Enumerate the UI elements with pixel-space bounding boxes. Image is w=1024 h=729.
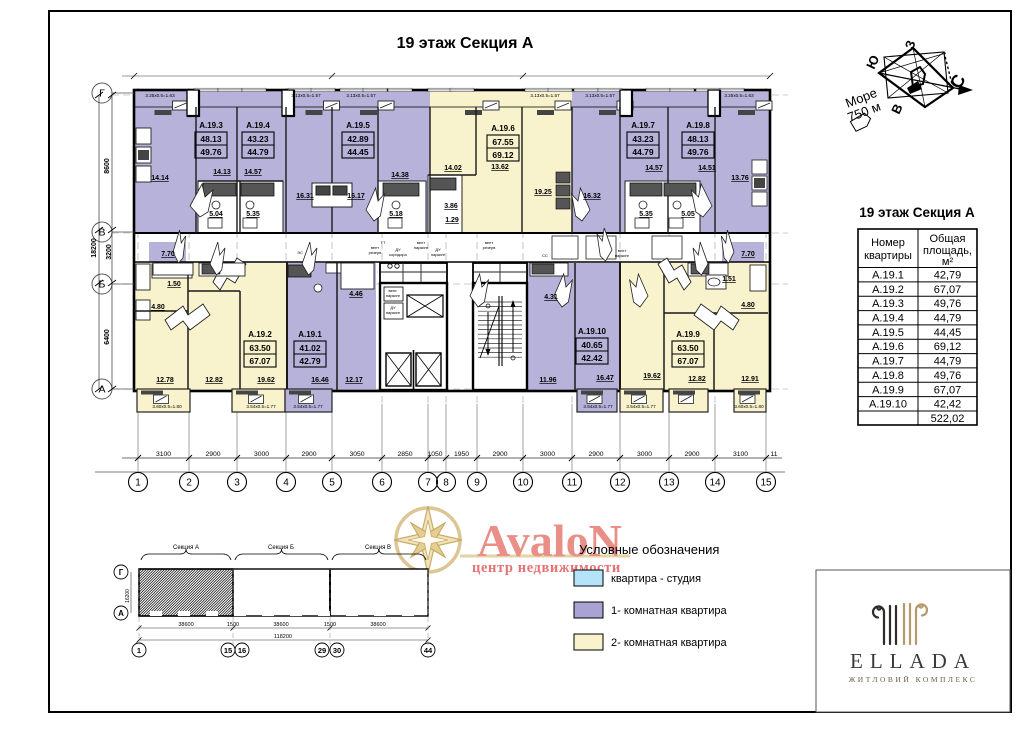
svg-text:3100: 3100 xyxy=(733,451,748,458)
svg-text:18200: 18200 xyxy=(91,238,98,258)
svg-text:А.19.9: А.19.9 xyxy=(676,330,700,339)
svg-text:44,79: 44,79 xyxy=(934,313,962,325)
svg-text:А.19.10: А.19.10 xyxy=(578,327,607,336)
svg-text:AvaloN: AvaloN xyxy=(477,515,622,566)
svg-text:резерв: резерв xyxy=(369,250,382,255)
svg-text:12.91: 12.91 xyxy=(741,376,759,383)
svg-text:Номер: Номер xyxy=(871,237,905,249)
svg-text:12.82: 12.82 xyxy=(688,376,706,383)
svg-text:3.13х0.5=1.57: 3.13х0.5=1.57 xyxy=(291,93,321,98)
svg-text:7.70: 7.70 xyxy=(161,251,175,258)
svg-text:3000: 3000 xyxy=(540,451,555,458)
svg-text:резерв: резерв xyxy=(483,245,496,250)
svg-text:15: 15 xyxy=(760,478,772,489)
svg-text:8: 8 xyxy=(443,478,449,489)
svg-text:67.07: 67.07 xyxy=(677,356,699,366)
svg-text:паркинг: паркинг xyxy=(414,245,429,250)
svg-text:12.78: 12.78 xyxy=(156,377,174,384)
svg-text:16.32: 16.32 xyxy=(583,193,601,200)
svg-text:А.19.6: А.19.6 xyxy=(872,341,904,353)
svg-text:44.79: 44.79 xyxy=(632,147,654,157)
svg-text:13.76: 13.76 xyxy=(731,175,749,182)
svg-text:38600: 38600 xyxy=(273,622,288,628)
svg-text:1.29: 1.29 xyxy=(445,217,459,224)
svg-text:А.19.8: А.19.8 xyxy=(872,370,904,382)
svg-text:4.80: 4.80 xyxy=(741,302,755,309)
svg-text:3.54х0.5=1.77: 3.54х0.5=1.77 xyxy=(583,404,613,409)
svg-text:44,45: 44,45 xyxy=(934,327,962,339)
svg-text:ТТ: ТТ xyxy=(381,240,386,245)
svg-text:48.13: 48.13 xyxy=(200,134,222,144)
svg-text:42.79: 42.79 xyxy=(299,356,321,366)
svg-text:118200: 118200 xyxy=(274,634,292,640)
svg-text:69.12: 69.12 xyxy=(492,150,514,160)
svg-text:А.19.7: А.19.7 xyxy=(631,121,655,130)
svg-text:49,76: 49,76 xyxy=(934,298,962,310)
svg-text:паркинг: паркинг xyxy=(615,253,630,258)
svg-text:16.46: 16.46 xyxy=(311,377,329,384)
svg-text:10: 10 xyxy=(517,478,529,489)
svg-text:16: 16 xyxy=(238,646,246,655)
svg-text:5.18: 5.18 xyxy=(389,211,403,218)
svg-text:14.57: 14.57 xyxy=(645,165,663,172)
svg-text:19.62: 19.62 xyxy=(643,373,661,380)
svg-text:паркинг: паркинг xyxy=(431,252,446,257)
svg-text:16.47: 16.47 xyxy=(596,375,614,382)
svg-text:коридора: коридора xyxy=(389,252,407,257)
svg-text:49.76: 49.76 xyxy=(687,147,709,157)
svg-text:А.19.5: А.19.5 xyxy=(872,327,904,339)
svg-text:522,02: 522,02 xyxy=(931,413,965,425)
svg-text:67.55: 67.55 xyxy=(492,137,514,147)
svg-text:2900: 2900 xyxy=(492,451,507,458)
svg-text:4.46: 4.46 xyxy=(349,291,363,298)
svg-text:2850: 2850 xyxy=(397,451,412,458)
svg-text:3.54х0.5=1.77: 3.54х0.5=1.77 xyxy=(626,404,656,409)
svg-text:5.35: 5.35 xyxy=(246,211,260,218)
svg-text:5.04: 5.04 xyxy=(209,211,223,218)
svg-text:67,07: 67,07 xyxy=(934,284,962,296)
svg-text:42.89: 42.89 xyxy=(347,134,369,144)
svg-text:3050: 3050 xyxy=(349,451,364,458)
svg-text:4.31: 4.31 xyxy=(544,294,558,301)
svg-text:3.54х0.5=1.77: 3.54х0.5=1.77 xyxy=(293,404,323,409)
svg-text:А.19.2: А.19.2 xyxy=(248,330,272,339)
svg-text:3.25х0.5=1.63: 3.25х0.5=1.63 xyxy=(724,93,754,98)
svg-text:А.19.1: А.19.1 xyxy=(872,270,904,282)
svg-text:14.02: 14.02 xyxy=(444,165,462,172)
svg-text:14.14: 14.14 xyxy=(151,175,169,182)
svg-text:3.25х0.5=1.63: 3.25х0.5=1.63 xyxy=(145,93,175,98)
svg-text:А.19.8: А.19.8 xyxy=(686,121,710,130)
svg-text:11: 11 xyxy=(770,451,777,458)
svg-text:1- комнатная квартира: 1- комнатная квартира xyxy=(611,605,727,617)
svg-text:ЭС: ЭС xyxy=(297,250,303,255)
svg-text:44: 44 xyxy=(424,646,433,655)
svg-text:19.62: 19.62 xyxy=(257,377,275,384)
svg-text:А.19.4: А.19.4 xyxy=(872,313,904,325)
svg-text:СС: СС xyxy=(542,253,548,258)
svg-text:А.19.3: А.19.3 xyxy=(872,298,904,310)
svg-text:67.07: 67.07 xyxy=(249,356,271,366)
svg-text:5: 5 xyxy=(329,478,335,489)
svg-text:16.31: 16.31 xyxy=(296,193,314,200)
svg-text:12.82: 12.82 xyxy=(205,377,223,384)
svg-text:19.25: 19.25 xyxy=(534,189,552,196)
svg-text:паркинг: паркинг xyxy=(386,293,401,298)
svg-text:49,76: 49,76 xyxy=(934,370,962,382)
svg-text:4.80: 4.80 xyxy=(151,304,165,311)
svg-text:63.50: 63.50 xyxy=(677,343,699,353)
svg-text:3000: 3000 xyxy=(254,451,269,458)
svg-text:16.17: 16.17 xyxy=(347,193,365,200)
svg-text:14.57: 14.57 xyxy=(244,169,262,176)
svg-text:А.19.6: А.19.6 xyxy=(491,124,515,133)
svg-text:44,79: 44,79 xyxy=(934,356,962,368)
svg-text:квартира - студия: квартира - студия xyxy=(611,573,701,585)
svg-text:42,42: 42,42 xyxy=(934,399,962,411)
svg-text:14.51: 14.51 xyxy=(698,165,716,172)
svg-text:6400: 6400 xyxy=(104,329,111,345)
svg-text:38600: 38600 xyxy=(370,622,385,628)
svg-text:15: 15 xyxy=(224,646,232,655)
svg-text:А: А xyxy=(98,384,105,396)
svg-text:6: 6 xyxy=(379,478,385,489)
svg-text:14.13: 14.13 xyxy=(213,169,231,176)
svg-text:1: 1 xyxy=(137,646,141,655)
svg-text:48.13: 48.13 xyxy=(687,134,709,144)
svg-text:паркинг: паркинг xyxy=(386,310,401,315)
svg-text:1050: 1050 xyxy=(427,451,442,458)
svg-text:43.23: 43.23 xyxy=(247,134,269,144)
svg-text:Условные обозначения: Условные обозначения xyxy=(579,542,719,557)
svg-text:2900: 2900 xyxy=(301,451,316,458)
svg-text:А.19.10: А.19.10 xyxy=(869,399,907,411)
svg-text:3: 3 xyxy=(234,478,240,489)
svg-text:42.42: 42.42 xyxy=(581,353,603,363)
svg-text:7: 7 xyxy=(425,478,431,489)
svg-text:12.17: 12.17 xyxy=(345,377,363,384)
svg-text:5.05: 5.05 xyxy=(681,211,695,218)
svg-text:14.38: 14.38 xyxy=(391,172,409,179)
svg-text:Секция В: Секция В xyxy=(365,545,391,551)
svg-text:3000: 3000 xyxy=(637,451,652,458)
svg-text:А.19.5: А.19.5 xyxy=(346,121,370,130)
svg-text:2: 2 xyxy=(186,478,192,489)
svg-text:3.13х0.5=1.57: 3.13х0.5=1.57 xyxy=(346,93,376,98)
svg-text:43.23: 43.23 xyxy=(632,134,654,144)
svg-text:4: 4 xyxy=(283,478,289,489)
svg-text:16200: 16200 xyxy=(125,589,131,603)
svg-text:3.60х0.5=1.80: 3.60х0.5=1.80 xyxy=(152,404,182,409)
svg-text:13: 13 xyxy=(663,478,675,489)
svg-text:30: 30 xyxy=(333,646,341,655)
svg-text:38600: 38600 xyxy=(178,622,193,628)
svg-text:м²: м² xyxy=(942,256,954,268)
svg-text:41.02: 41.02 xyxy=(299,343,321,353)
svg-text:69,12: 69,12 xyxy=(934,341,962,353)
svg-text:ЖИТЛОВИЙ КОМПЛЕКС: ЖИТЛОВИЙ КОМПЛЕКС xyxy=(849,675,978,684)
svg-text:1: 1 xyxy=(135,478,141,489)
svg-text:Г: Г xyxy=(99,88,105,100)
svg-text:3.54х0.5=1.77: 3.54х0.5=1.77 xyxy=(246,404,276,409)
svg-text:19 этаж Секция А: 19 этаж Секция А xyxy=(859,205,975,220)
svg-text:2900: 2900 xyxy=(684,451,699,458)
svg-text:3.13х0.5=1.57: 3.13х0.5=1.57 xyxy=(585,93,615,98)
svg-text:3.60х0.5=1.80: 3.60х0.5=1.80 xyxy=(734,404,764,409)
svg-text:1950: 1950 xyxy=(454,451,469,458)
svg-text:1.51: 1.51 xyxy=(722,276,736,283)
svg-text:ELLADA: ELLADA xyxy=(850,649,976,673)
svg-text:3.86: 3.86 xyxy=(444,203,458,210)
svg-text:19 этаж Секция А: 19 этаж Секция А xyxy=(397,35,534,52)
svg-text:42,79: 42,79 xyxy=(934,270,962,282)
svg-text:А.19.2: А.19.2 xyxy=(872,284,904,296)
svg-text:2- комнатная квартира: 2- комнатная квартира xyxy=(611,637,727,649)
svg-text:40.65: 40.65 xyxy=(581,340,603,350)
svg-text:3100: 3100 xyxy=(156,451,171,458)
svg-text:Г: Г xyxy=(119,568,124,577)
svg-text:14: 14 xyxy=(709,478,721,489)
svg-text:12: 12 xyxy=(614,478,626,489)
svg-text:2900: 2900 xyxy=(205,451,220,458)
svg-text:А: А xyxy=(118,609,124,618)
svg-text:8600: 8600 xyxy=(104,158,111,174)
svg-text:квартиры: квартиры xyxy=(864,250,912,262)
svg-text:11.96: 11.96 xyxy=(539,377,556,384)
svg-text:А.19.7: А.19.7 xyxy=(872,356,904,368)
svg-text:9: 9 xyxy=(474,478,480,489)
svg-text:44.45: 44.45 xyxy=(347,147,369,157)
svg-text:2900: 2900 xyxy=(588,451,603,458)
svg-text:49.76: 49.76 xyxy=(200,147,222,157)
svg-text:63.50: 63.50 xyxy=(249,343,271,353)
svg-text:А.19.3: А.19.3 xyxy=(199,121,223,130)
svg-text:А.19.4: А.19.4 xyxy=(246,121,270,130)
svg-text:Общая: Общая xyxy=(930,233,966,245)
svg-text:11: 11 xyxy=(567,478,578,489)
svg-text:67,07: 67,07 xyxy=(934,384,962,396)
svg-text:13.62: 13.62 xyxy=(491,164,509,171)
svg-text:29: 29 xyxy=(318,646,326,655)
svg-text:3.13х0.5=1.57: 3.13х0.5=1.57 xyxy=(530,93,560,98)
svg-text:44.79: 44.79 xyxy=(247,147,269,157)
svg-text:3200: 3200 xyxy=(106,244,113,260)
svg-text:5.35: 5.35 xyxy=(639,211,653,218)
svg-text:7.70: 7.70 xyxy=(741,251,755,258)
svg-text:1.50: 1.50 xyxy=(167,281,181,288)
svg-text:А.19.9: А.19.9 xyxy=(872,384,904,396)
svg-text:А.19.1: А.19.1 xyxy=(298,330,322,339)
